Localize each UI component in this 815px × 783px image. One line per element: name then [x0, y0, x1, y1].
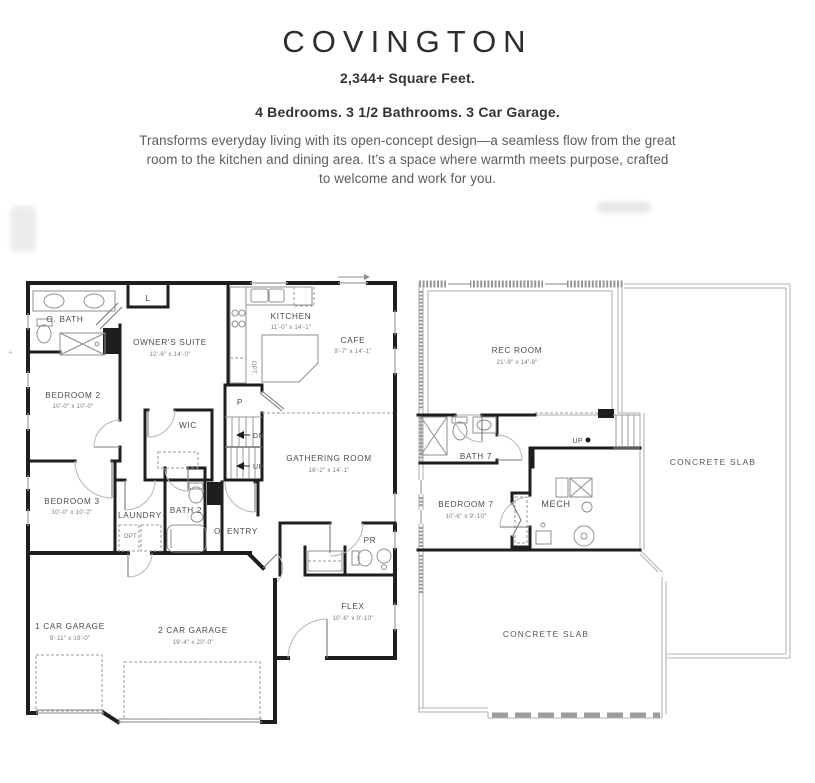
cooktop-burner-icon [232, 310, 238, 316]
kitchen-fixtures [230, 287, 318, 383]
opt-label-laundry: OPT. [124, 533, 139, 540]
first-floor-plan: DN UP + O. BATH L OWNER'S SUITE 12'-6" x… [8, 274, 395, 722]
room-label-bedroom7: BEDROOM 7 [438, 500, 493, 509]
tub-icon [167, 525, 206, 552]
direction-arrow [338, 274, 370, 280]
mech-fixtures [536, 478, 594, 546]
garage2-door-outline [124, 662, 260, 719]
water-heater-icon [574, 526, 594, 546]
room-dims-bedroom2: 10'-0" x 10'-0" [52, 403, 93, 410]
up-label: UP [572, 438, 583, 445]
foundation-walls [416, 278, 790, 718]
vanity-counter [473, 417, 496, 433]
dimension-tick: + [8, 348, 13, 357]
room-dims-bedroom3: 10'-0" x 10'-2" [51, 509, 92, 516]
pantry-door [260, 391, 284, 411]
label-concrete-slab-bottom: CONCRETE SLAB [503, 629, 589, 639]
plan-title: COVINGTON [0, 24, 815, 60]
room-dims-rec: 21'-9" x 14'-8" [496, 359, 537, 366]
sump-icon [536, 531, 551, 544]
garage1-door-outline [36, 655, 102, 711]
room-dims-kitchen: 11'-0" x 14'-1" [271, 324, 312, 331]
room-dims-owners-suite: 12'-6" x 14'-0" [149, 351, 190, 358]
label-concrete-slab-right: CONCRETE SLAB [670, 457, 756, 467]
floorplan-sheet: COVINGTON 2,344+ Square Feet. 4 Bedrooms… [0, 0, 815, 783]
stats-sqft: 2,344+ Square Feet. [340, 70, 475, 86]
room-label-cafe: CAFE [341, 336, 366, 345]
closet-bifold-door [512, 503, 521, 537]
pedestal-sink-icon [377, 549, 391, 563]
room-label-bedroom2: BEDROOM 2 [45, 391, 100, 400]
room-label-garage1: 1 CAR GARAGE [35, 622, 105, 631]
room-label-bedroom3: BEDROOM 3 [44, 497, 99, 506]
stats-rooms: 4 Bedrooms. 3 1/2 Bathrooms. 3 Car Garag… [255, 104, 560, 120]
room-label-gathering: GATHERING ROOM [286, 454, 372, 463]
description-line-1: Transforms everyday living with its open… [0, 131, 815, 150]
basement-interior-walls [418, 415, 640, 550]
linen-closet-solid [103, 328, 120, 354]
room-label-pantry: P [237, 398, 243, 407]
plan-description: Transforms everyday living with its open… [0, 131, 815, 188]
room-label-bath7: BATH 7 [460, 452, 492, 461]
room-label-rec: REC ROOM [492, 346, 543, 355]
kitchen-island [262, 335, 318, 382]
room-label-owners-suite: OWNER'S SUITE [133, 338, 207, 347]
description-line-2: room to the kitchen and dining area. It’… [0, 150, 815, 169]
description-line-3: to welcome and work for you. [0, 169, 815, 188]
basement-stair-marker: UP [572, 438, 590, 446]
bath7-fixtures [421, 417, 496, 455]
room-dims-garage1: 9'-11" x 19'-0" [50, 635, 91, 642]
powder-room-fixtures [308, 549, 391, 571]
dn-label: DN [253, 433, 264, 440]
optional-fridge [294, 287, 314, 306]
room-label-garage2: 2 CAR GARAGE [158, 626, 228, 635]
room-dims-bedroom7: 10'-6" x 9'-10" [445, 513, 486, 520]
optional-appliance [230, 358, 246, 383]
stair-markers: DN UP [236, 431, 264, 471]
toilet-icon [358, 550, 372, 566]
stairs-basement [613, 415, 640, 448]
room-label-obath: O. BATH [46, 315, 83, 324]
sink-icon [477, 420, 491, 430]
room-label-mech: MECH [541, 499, 570, 509]
toilet-icon [37, 325, 51, 343]
kitchen-counter-left [230, 287, 246, 383]
room-dims-flex: 10'-6" x 9'-10" [332, 615, 373, 622]
plan-stats: 2,344+ Square Feet. 4 Bedrooms. 3 1/2 Ba… [0, 70, 815, 121]
room-label-pr: PR [364, 536, 377, 545]
sink-icon [251, 289, 268, 302]
up-label: UP [253, 464, 264, 471]
interior-walls [28, 283, 395, 575]
entry-closet-solid [207, 482, 222, 505]
room-dims-gathering: 16'-2" x 14'-1" [308, 467, 349, 474]
room-label-oentry: O. ENTRY [214, 527, 258, 536]
room-label-laundry: LAUNDRY [118, 511, 162, 520]
bath2-fixtures [167, 483, 206, 552]
room-dims-garage2: 19'-4" x 20'-0" [172, 639, 213, 646]
room-dims-cafe: 9'-7" x 14'-1" [334, 348, 371, 355]
dryer-icon [141, 525, 161, 551]
room-label-flex: FLEX [341, 602, 364, 611]
stair-wall-solid [598, 409, 614, 418]
room-label-bath2: BATH 2 [170, 506, 202, 515]
opt-label-kitchen: OPT. [250, 361, 257, 376]
basement-door-swings [455, 415, 530, 527]
room-label-wic: WIC [179, 421, 197, 430]
basement-plan: UP REC ROOM 21'-9" x 14'-8" CONCRETE SLA… [416, 278, 790, 718]
wic-optional-built-in [158, 452, 198, 468]
room-label-kitchen: KITCHEN [271, 312, 312, 321]
floor-plans-drawing: DN UP + O. BATH L OWNER'S SUITE 12'-6" x… [0, 195, 815, 783]
room-label-linen: L [145, 294, 150, 303]
